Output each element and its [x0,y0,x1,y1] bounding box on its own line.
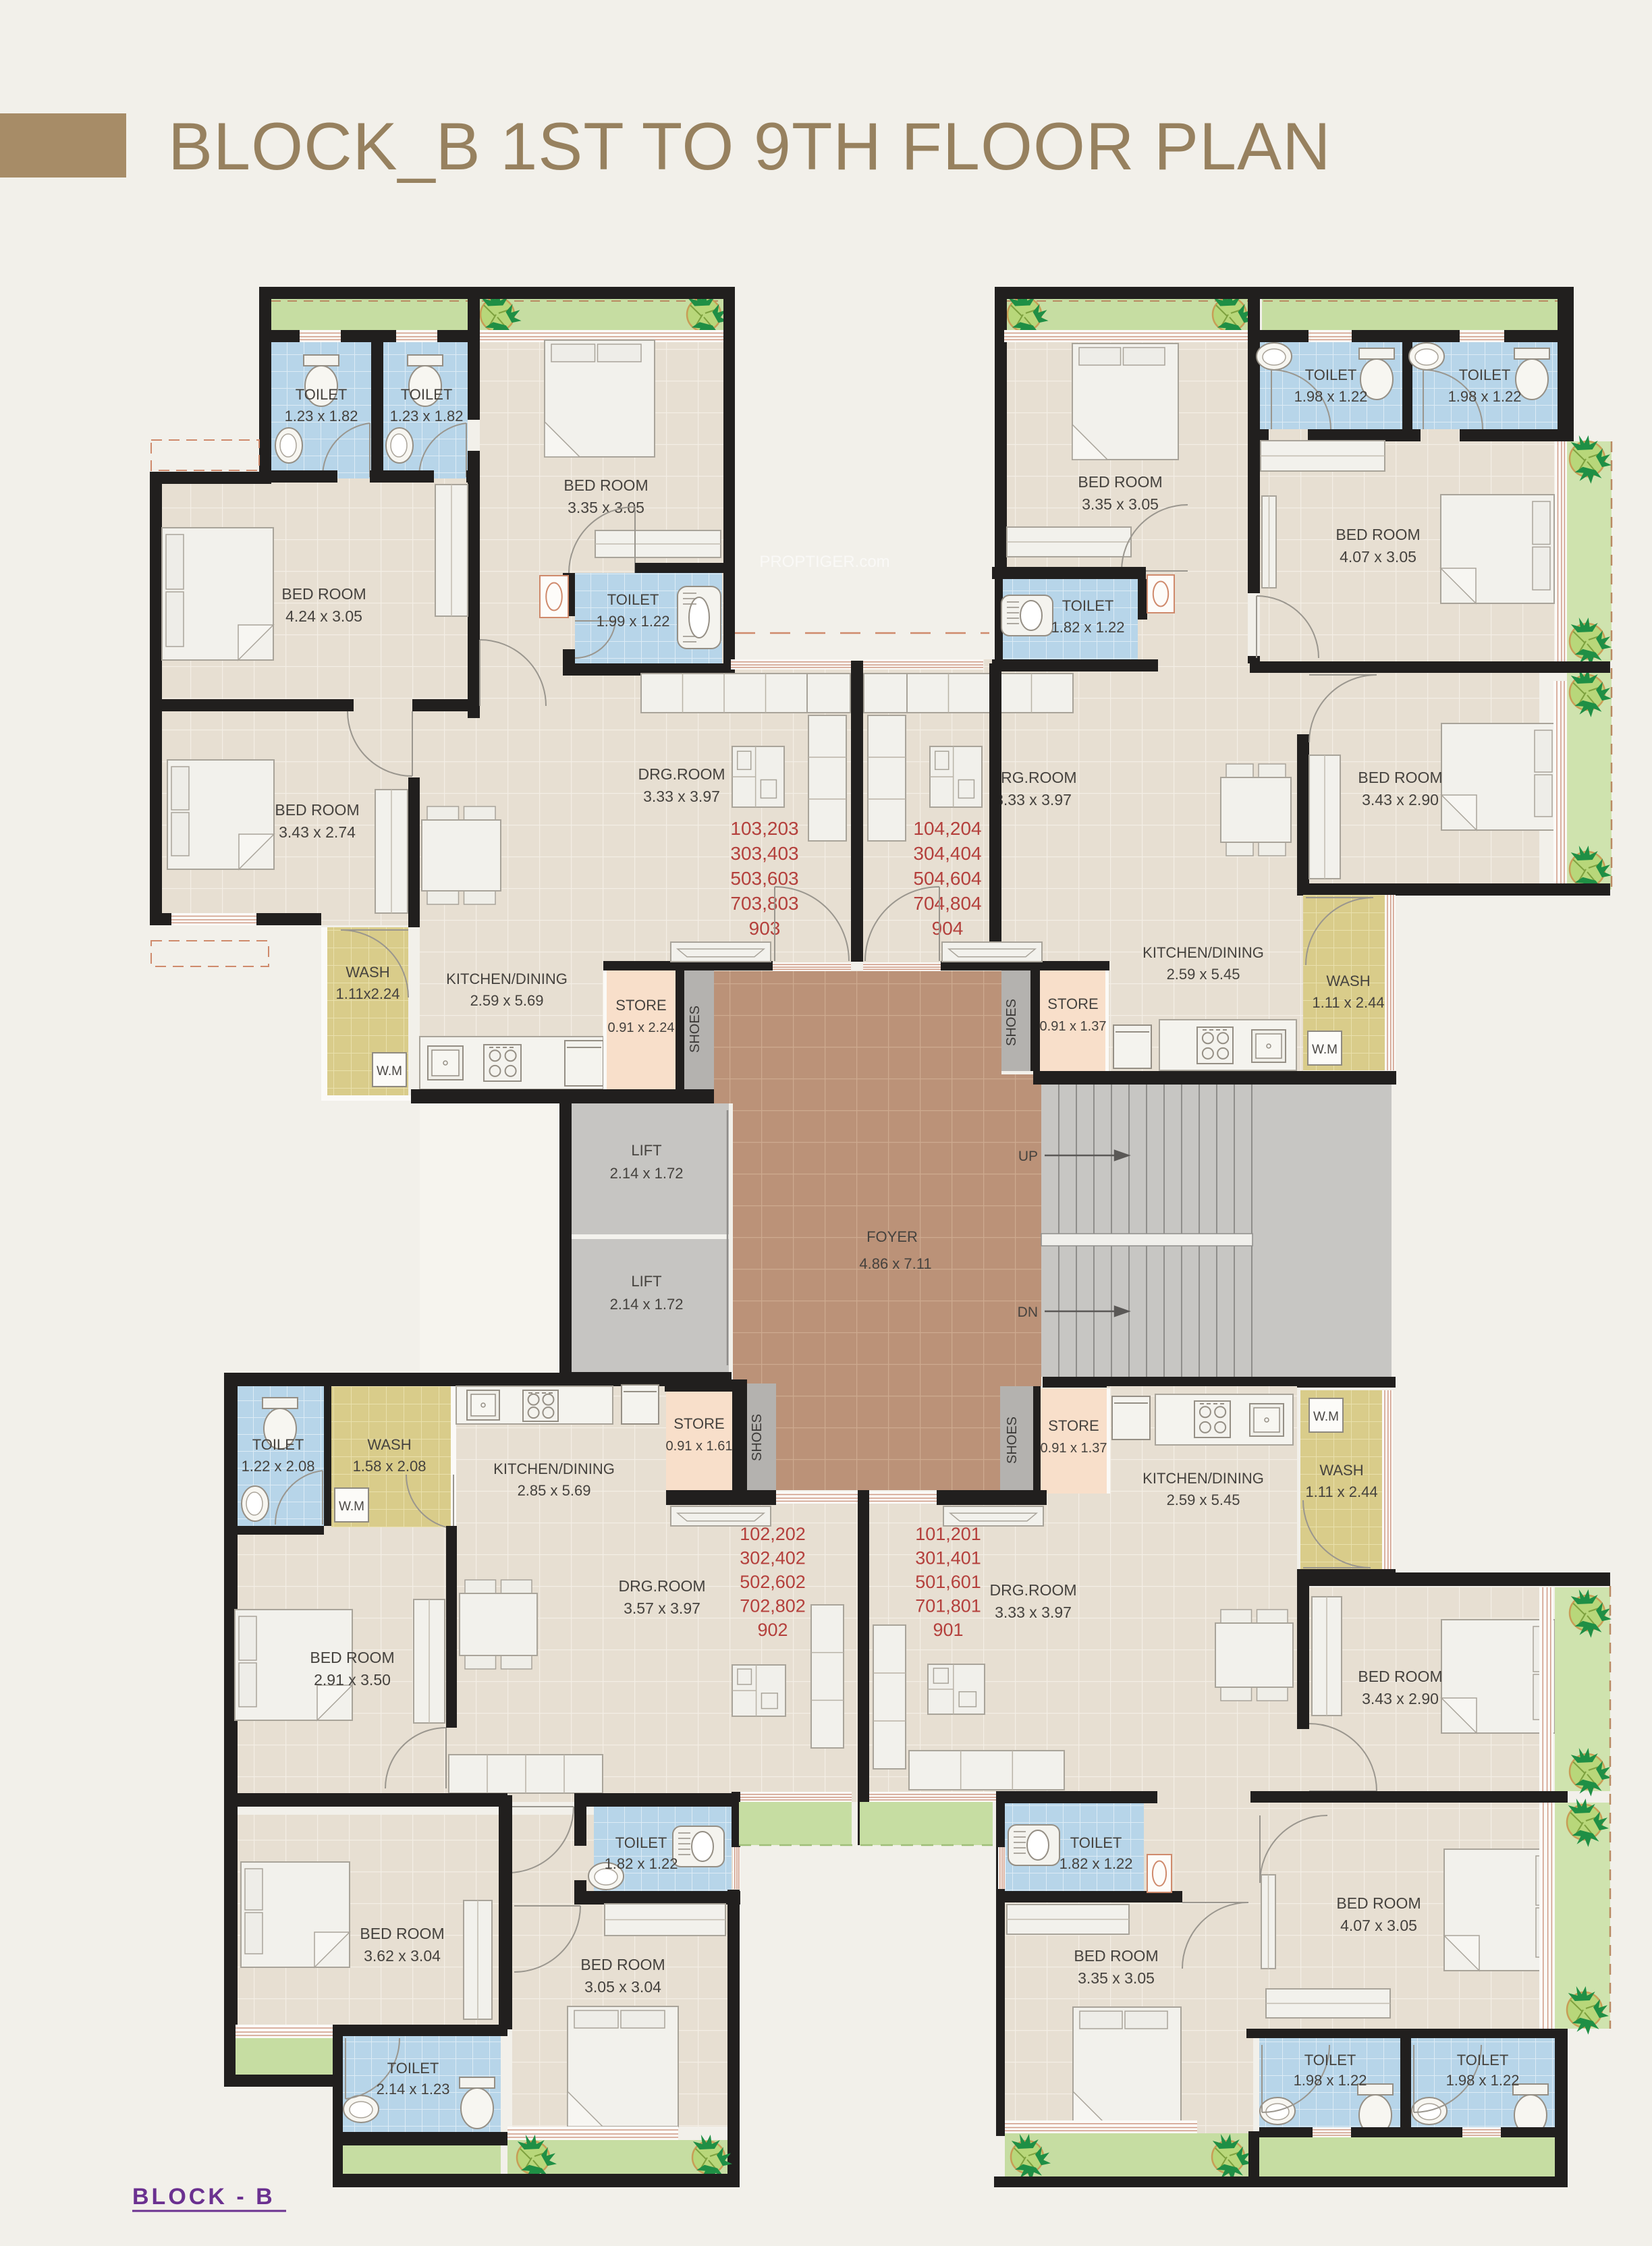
svg-text:1.58 x 2.08: 1.58 x 2.08 [353,1458,426,1475]
svg-text:SHOES: SHOES [750,1414,765,1461]
svg-text:SHOES: SHOES [1004,999,1019,1046]
svg-text:TOILET: TOILET [296,386,348,403]
svg-text:WASH: WASH [1326,973,1370,989]
svg-text:2.14 x 1.23: 2.14 x 1.23 [377,2081,450,2098]
svg-text:103,203: 103,203 [730,818,798,839]
svg-text:TOILET: TOILET [387,2060,439,2077]
svg-text:KITCHEN/DINING: KITCHEN/DINING [1142,944,1264,961]
svg-text:903: 903 [749,918,781,939]
svg-text:901: 901 [933,1620,963,1640]
svg-text:3.05 x 3.04: 3.05 x 3.04 [584,1978,661,1996]
svg-text:303,403: 303,403 [730,843,798,864]
svg-text:BED ROOM: BED ROOM [275,801,359,819]
svg-text:1.98 x 1.22: 1.98 x 1.22 [1294,388,1368,405]
svg-text:DRG.ROOM: DRG.ROOM [989,769,1076,786]
svg-text:703,803: 703,803 [730,893,798,914]
svg-text:503,603: 503,603 [730,868,798,889]
svg-text:1.82 x 1.22: 1.82 x 1.22 [605,1855,678,1872]
svg-text:KITCHEN/DINING: KITCHEN/DINING [493,1460,615,1477]
svg-text:2.59 x 5.45: 2.59 x 5.45 [1167,1491,1240,1508]
svg-text:1.11 x 2.44: 1.11 x 2.44 [1305,1483,1377,1500]
svg-text:2.14 x 1.72: 2.14 x 1.72 [610,1296,684,1313]
svg-text:STORE: STORE [1047,995,1098,1012]
svg-text:SHOES: SHOES [688,1006,703,1053]
svg-text:2.85 x 5.69: 2.85 x 5.69 [518,1482,591,1499]
svg-text:904: 904 [932,918,964,939]
svg-text:4.07 x 3.05: 4.07 x 3.05 [1340,548,1416,566]
svg-text:BED ROOM: BED ROOM [1336,1894,1421,1912]
svg-text:304,404: 304,404 [913,843,981,864]
svg-text:1.82 x 1.22: 1.82 x 1.22 [1051,619,1125,636]
svg-text:3.33 x 3.97: 3.33 x 3.97 [643,788,720,805]
svg-text:DRG.ROOM: DRG.ROOM [638,765,725,783]
svg-text:3.62 x 3.04: 3.62 x 3.04 [364,1947,441,1965]
svg-text:3.33 x 3.97: 3.33 x 3.97 [995,791,1072,809]
svg-text:BED ROOM: BED ROOM [563,476,648,494]
svg-text:1.82 x 1.22: 1.82 x 1.22 [1059,1855,1133,1872]
svg-text:TOILET: TOILET [1459,366,1511,383]
svg-text:BED ROOM: BED ROOM [1078,473,1162,491]
svg-text:BED ROOM: BED ROOM [310,1649,394,1666]
svg-text:TOILET: TOILET [1305,366,1357,383]
svg-text:3.43 x 2.90: 3.43 x 2.90 [1362,791,1439,809]
svg-text:KITCHEN/DINING: KITCHEN/DINING [1142,1470,1264,1487]
svg-text:0.91 x 1.37: 0.91 x 1.37 [1040,1019,1107,1034]
svg-text:3.57 x 3.97: 3.57 x 3.97 [624,1599,700,1617]
svg-text:1.98 x 1.22: 1.98 x 1.22 [1448,388,1522,405]
svg-text:TOILET: TOILET [1304,2052,1356,2069]
svg-text:2.59 x 5.69: 2.59 x 5.69 [470,992,544,1009]
svg-text:302,402: 302,402 [740,1548,806,1568]
svg-text:LIFT: LIFT [631,1273,661,1290]
svg-text:TOILET: TOILET [1062,597,1114,614]
svg-text:TOILET: TOILET [1070,1834,1122,1851]
svg-text:BED ROOM: BED ROOM [1336,526,1420,543]
svg-text:W.M: W.M [1313,1410,1339,1424]
svg-text:2.91 x 3.50: 2.91 x 3.50 [314,1671,391,1689]
svg-text:BED ROOM: BED ROOM [1358,1668,1442,1685]
svg-text:SHOES: SHOES [1005,1417,1020,1464]
svg-text:PROPTIGER.com: PROPTIGER.com [759,553,889,571]
svg-text:STORE: STORE [1048,1417,1099,1434]
svg-text:3.43 x 2.90: 3.43 x 2.90 [1362,1690,1439,1707]
svg-text:0.91 x 1.61: 0.91 x 1.61 [666,1439,733,1454]
svg-text:701,801: 701,801 [915,1596,981,1616]
svg-text:LIFT: LIFT [631,1142,661,1159]
svg-text:DN: DN [1018,1305,1038,1320]
svg-text:DRG.ROOM: DRG.ROOM [618,1577,705,1595]
svg-text:W.M: W.M [377,1064,402,1078]
svg-text:2.14 x 1.72: 2.14 x 1.72 [610,1165,684,1182]
svg-text:TOILET: TOILET [1457,2052,1509,2069]
svg-text:0.91 x 2.24: 0.91 x 2.24 [608,1020,675,1035]
svg-text:502,602: 502,602 [740,1572,806,1592]
svg-text:BED ROOM: BED ROOM [1074,1947,1158,1965]
svg-text:WASH: WASH [1319,1462,1363,1479]
svg-text:TOILET: TOILET [401,386,453,403]
svg-text:0.91 x 1.37: 0.91 x 1.37 [1041,1441,1107,1456]
svg-text:1.23 x 1.82: 1.23 x 1.82 [390,408,464,424]
svg-text:4.24 x 3.05: 4.24 x 3.05 [285,607,362,625]
svg-text:3.43 x 2.74: 3.43 x 2.74 [279,823,356,841]
svg-text:501,601: 501,601 [915,1572,981,1592]
svg-text:1.98 x 1.22: 1.98 x 1.22 [1446,2072,1520,2089]
svg-text:3.35 x 3.05: 3.35 x 3.05 [1082,495,1159,513]
svg-text:FOYER: FOYER [866,1228,918,1245]
svg-text:BED ROOM: BED ROOM [360,1925,444,1942]
svg-text:3.33 x 3.97: 3.33 x 3.97 [995,1604,1072,1621]
svg-text:101,201: 101,201 [915,1524,981,1544]
svg-text:301,401: 301,401 [915,1548,981,1568]
svg-text:3.35 x 3.05: 3.35 x 3.05 [1078,1969,1155,1987]
svg-text:104,204: 104,204 [913,818,981,839]
svg-text:102,202: 102,202 [740,1524,806,1544]
svg-text:4.07 x 3.05: 4.07 x 3.05 [1340,1917,1417,1934]
svg-text:W.M: W.M [1312,1043,1338,1057]
svg-text:TOILET: TOILET [615,1834,667,1851]
svg-text:STORE: STORE [673,1415,724,1432]
svg-text:BED ROOM: BED ROOM [281,585,366,603]
svg-text:504,604: 504,604 [913,868,981,889]
svg-text:TOILET: TOILET [607,591,659,608]
svg-text:TOILET: TOILET [252,1436,304,1453]
svg-text:1.23 x 1.82: 1.23 x 1.82 [285,408,358,424]
svg-text:704,804: 704,804 [913,893,981,914]
svg-text:702,802: 702,802 [740,1596,806,1616]
svg-text:BED ROOM: BED ROOM [580,1956,665,1973]
svg-text:KITCHEN/DINING: KITCHEN/DINING [446,970,568,987]
svg-text:902: 902 [757,1620,788,1640]
svg-text:BLOCK - B: BLOCK - B [132,2184,275,2210]
svg-text:WASH: WASH [346,964,389,981]
svg-text:2.59 x 5.45: 2.59 x 5.45 [1167,966,1240,983]
svg-text:4.86 x 7.11: 4.86 x 7.11 [859,1255,931,1272]
svg-text:BLOCK_B 1ST TO 9TH FLOOR PLAN: BLOCK_B 1ST TO 9TH FLOOR PLAN [168,109,1331,184]
svg-text:1.99 x 1.22: 1.99 x 1.22 [597,613,670,630]
svg-text:STORE: STORE [615,997,666,1014]
svg-text:W.M: W.M [339,1500,364,1514]
svg-text:WASH: WASH [367,1436,411,1453]
svg-text:1.11 x 2.44: 1.11 x 2.44 [1312,994,1384,1011]
svg-text:1.22 x 2.08: 1.22 x 2.08 [242,1458,315,1475]
svg-text:DRG.ROOM: DRG.ROOM [989,1581,1076,1599]
svg-text:UP: UP [1018,1149,1038,1164]
svg-text:1.98 x 1.22: 1.98 x 1.22 [1294,2072,1367,2089]
svg-text:1.11x2.24: 1.11x2.24 [335,985,400,1002]
svg-text:BED ROOM: BED ROOM [1358,769,1442,786]
